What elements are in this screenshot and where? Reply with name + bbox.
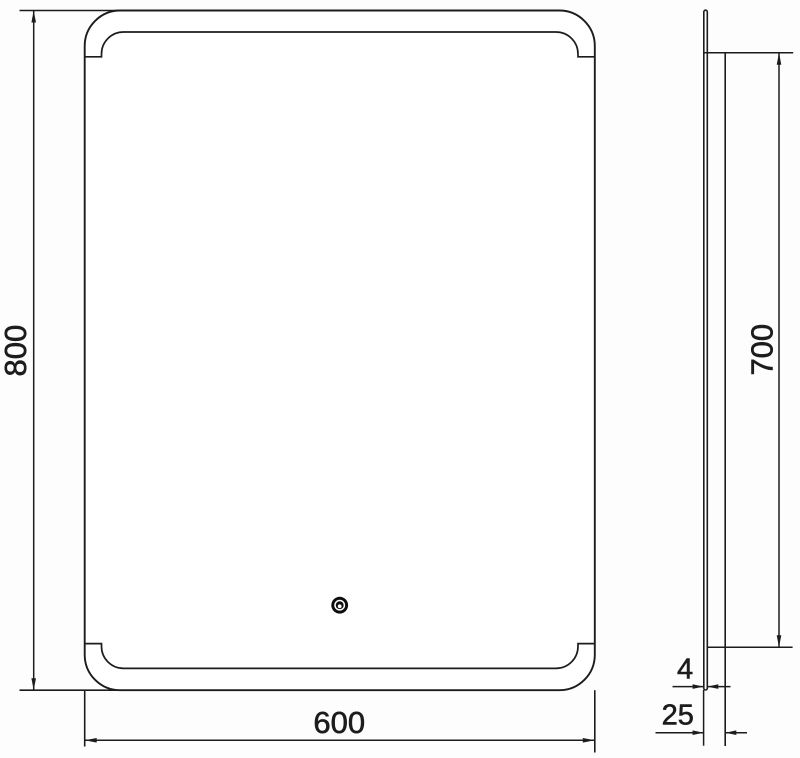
svg-text:4: 4	[677, 653, 693, 685]
svg-text:25: 25	[662, 700, 694, 732]
svg-text:700: 700	[745, 324, 780, 376]
svg-text:600: 600	[313, 705, 365, 740]
svg-text:800: 800	[0, 325, 33, 377]
